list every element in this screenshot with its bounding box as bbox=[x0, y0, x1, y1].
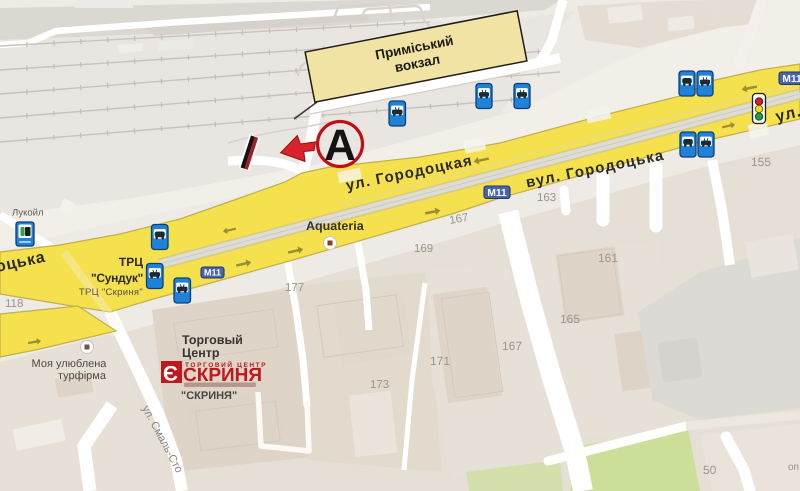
svg-text:А: А bbox=[324, 121, 356, 170]
svg-text:"СКРИНЯ": "СКРИНЯ" bbox=[181, 390, 237, 402]
svg-text:163: 163 bbox=[537, 192, 556, 204]
svg-text:Aquateria: Aquateria bbox=[306, 219, 365, 233]
svg-text:Торговый: Торговый bbox=[182, 333, 243, 347]
svg-text:Моя улюблена: Моя улюблена bbox=[32, 358, 108, 370]
svg-text:М11: М11 bbox=[204, 267, 221, 277]
svg-text:ТРЦ "Скриня": ТРЦ "Скриня" bbox=[79, 287, 143, 298]
svg-text:155: 155 bbox=[751, 155, 771, 169]
svg-text:М11: М11 bbox=[487, 188, 507, 199]
svg-text:оп: оп bbox=[788, 462, 799, 473]
svg-text:171: 171 bbox=[430, 354, 450, 368]
svg-text:ТРЦ: ТРЦ bbox=[119, 255, 143, 269]
svg-text:177: 177 bbox=[285, 282, 304, 294]
svg-text:турфірма: турфірма bbox=[58, 370, 107, 382]
svg-text:169: 169 bbox=[414, 243, 433, 255]
svg-text:Центр: Центр bbox=[182, 346, 220, 360]
svg-text:Лукойл: Лукойл bbox=[12, 208, 44, 219]
svg-text:173: 173 bbox=[370, 379, 389, 391]
svg-text:"Сундук": "Сундук" bbox=[91, 271, 143, 285]
svg-text:165: 165 bbox=[560, 312, 580, 326]
svg-text:167: 167 bbox=[502, 339, 522, 353]
svg-text:Є: Є bbox=[163, 363, 178, 386]
svg-text:118: 118 bbox=[5, 298, 23, 310]
svg-text:М11: М11 bbox=[782, 74, 800, 85]
svg-text:50: 50 bbox=[703, 463, 717, 477]
svg-text:161: 161 bbox=[598, 251, 618, 265]
